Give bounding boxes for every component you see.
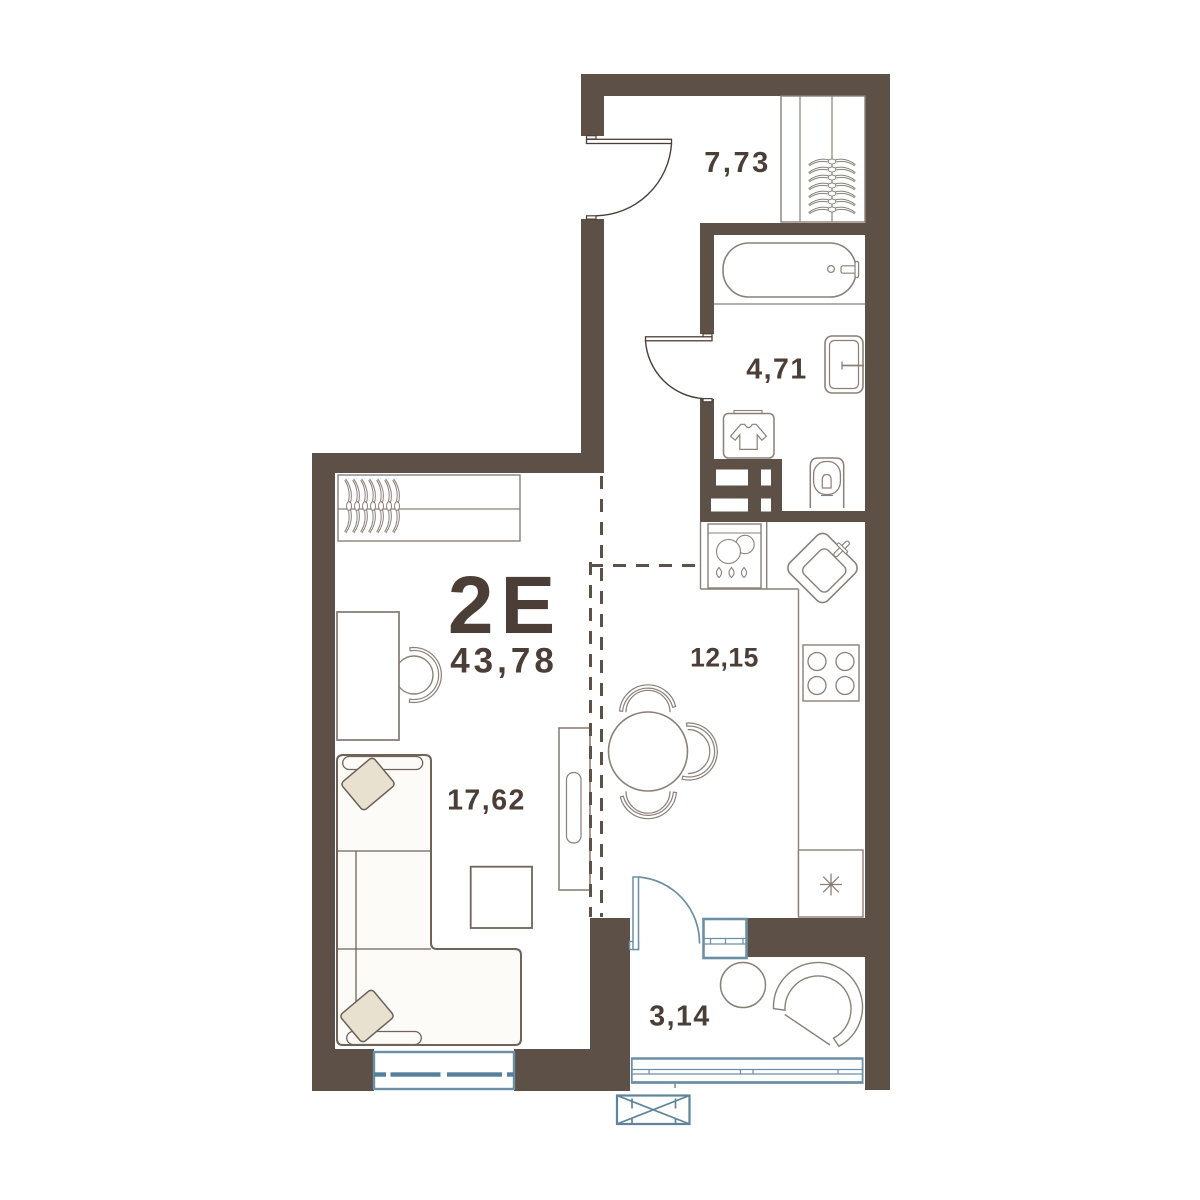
svg-text:2E: 2E (448, 560, 562, 651)
svg-text:17,62: 17,62 (447, 785, 526, 817)
svg-text:7,73: 7,73 (704, 147, 770, 179)
svg-text:4,71: 4,71 (746, 354, 807, 386)
svg-text:12,15: 12,15 (690, 643, 759, 673)
svg-text:3,14: 3,14 (649, 1001, 710, 1033)
svg-text:43,78: 43,78 (450, 642, 558, 681)
